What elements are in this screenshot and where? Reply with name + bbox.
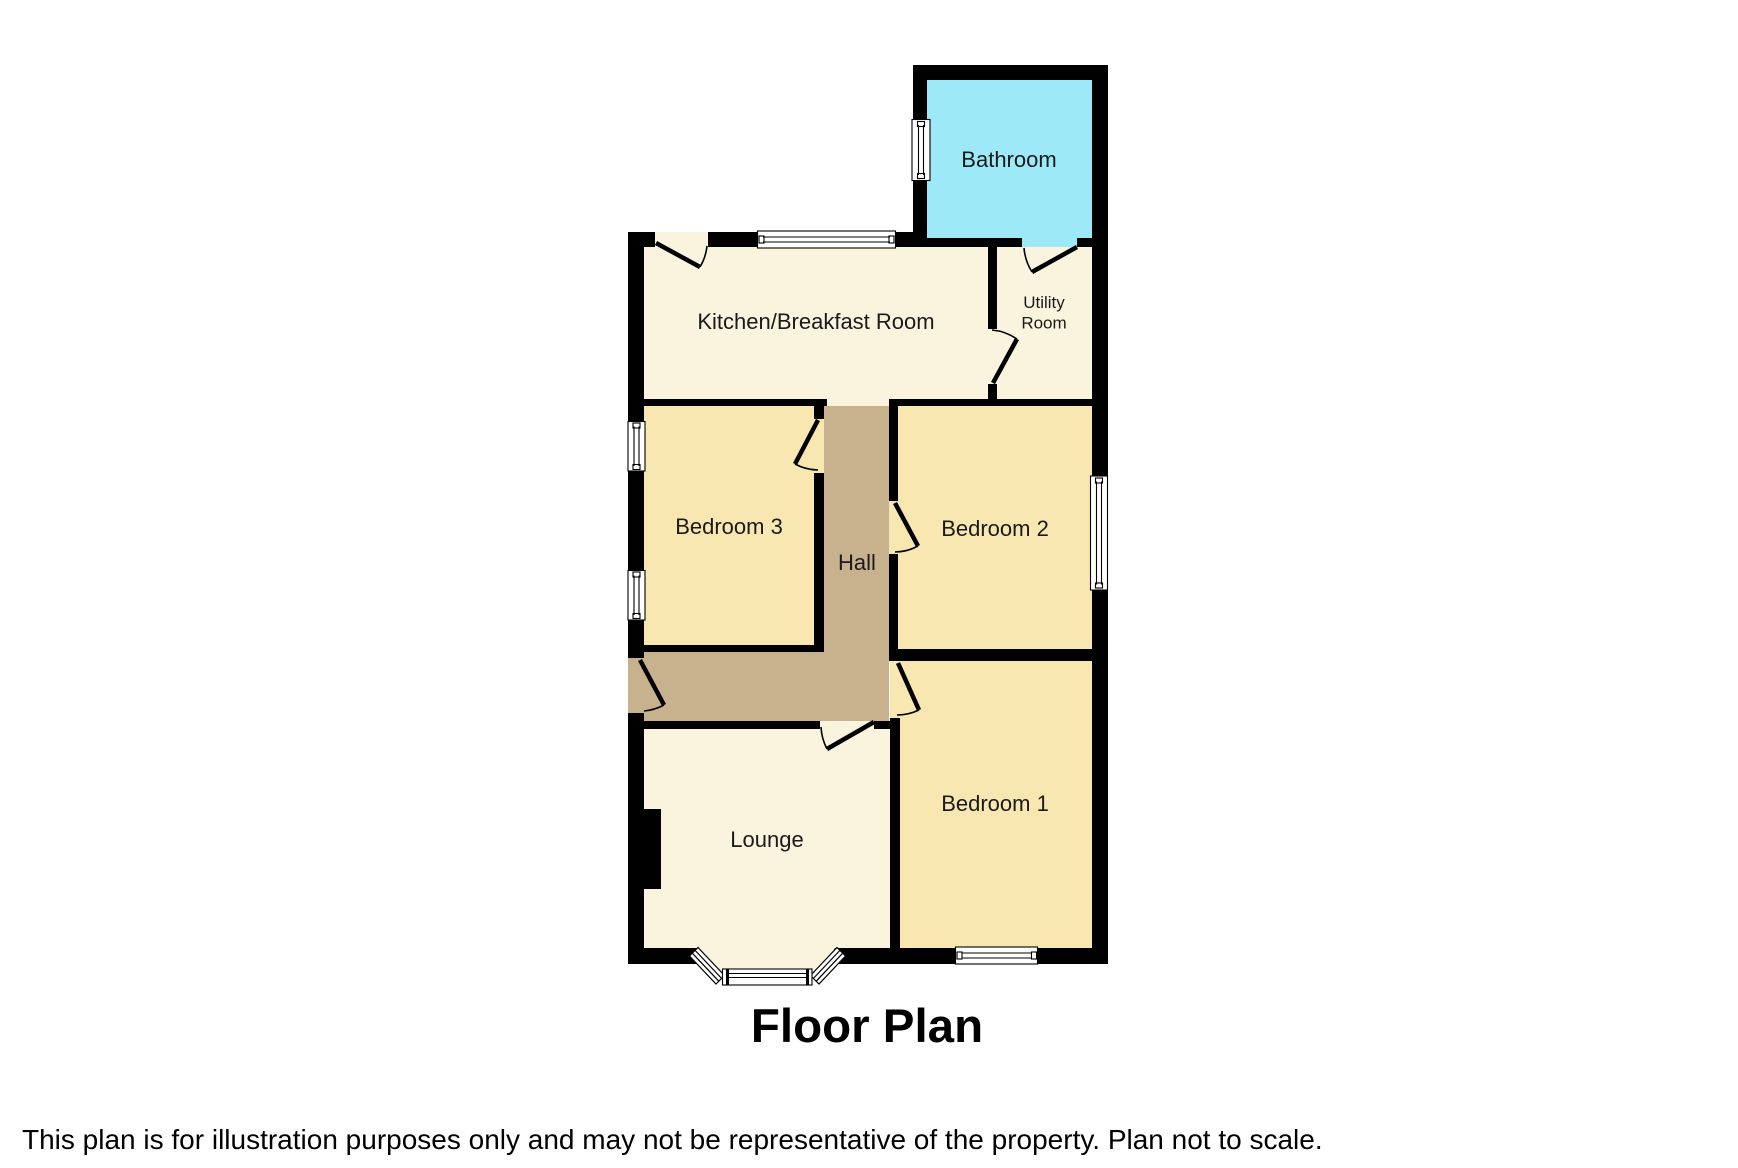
svg-text:This plan is for illustration: This plan is for illustration purposes o… [22, 1124, 1323, 1155]
svg-text:Bedroom 1: Bedroom 1 [941, 791, 1049, 816]
svg-text:Floor Plan: Floor Plan [751, 1000, 983, 1053]
svg-text:Hall: Hall [838, 550, 876, 575]
svg-text:Bedroom 2: Bedroom 2 [941, 516, 1049, 541]
svg-text:Kitchen/Breakfast Room: Kitchen/Breakfast Room [697, 309, 934, 334]
svg-text:Room: Room [1021, 314, 1066, 333]
svg-text:Utility: Utility [1023, 293, 1065, 312]
svg-text:Lounge: Lounge [730, 827, 803, 852]
svg-text:Bedroom 3: Bedroom 3 [675, 514, 783, 539]
svg-text:Bathroom: Bathroom [961, 147, 1056, 172]
